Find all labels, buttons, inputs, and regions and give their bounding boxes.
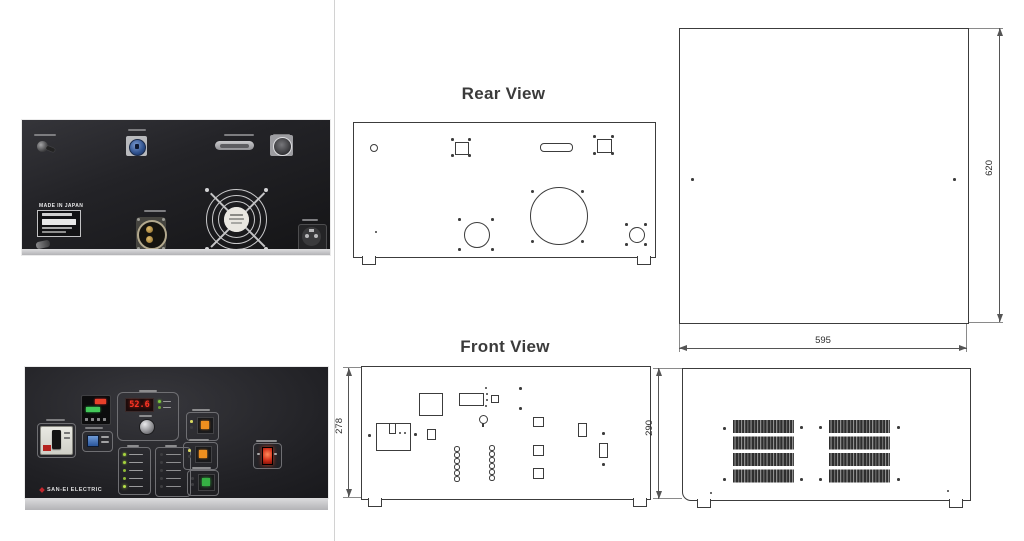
temp-button <box>91 418 94 421</box>
top-view-drawing <box>679 28 969 324</box>
led-hole <box>454 446 460 452</box>
status-led <box>123 477 126 480</box>
brand-logo-icon <box>39 487 45 493</box>
alarm-led <box>160 469 163 472</box>
main-power-switch <box>262 447 273 465</box>
corner-hole <box>593 135 596 138</box>
status-led-label <box>129 454 143 456</box>
laser-power-label <box>139 390 157 392</box>
alarm-led-label <box>166 470 181 472</box>
side-hole <box>691 178 694 181</box>
small-hole <box>486 393 488 395</box>
remote-label <box>101 436 109 438</box>
fan-screw <box>205 188 209 192</box>
small-hole <box>399 432 401 434</box>
panel-label <box>34 134 56 136</box>
fan-mount-hole <box>581 190 584 193</box>
side-height-dim-line <box>658 368 659 499</box>
run-led-label <box>163 401 171 403</box>
keyswitch-slot <box>482 423 484 427</box>
breaker-text <box>64 432 70 434</box>
small-hole <box>404 432 406 434</box>
small-connector <box>35 240 50 250</box>
main-breaker <box>40 426 73 455</box>
flange-screw <box>137 218 140 221</box>
vent-grille <box>829 420 890 486</box>
small-hole <box>947 490 949 492</box>
small-hole <box>519 407 522 410</box>
breaker-rating-label <box>43 445 51 451</box>
chassis-foot <box>949 499 963 508</box>
corner-hole <box>451 154 454 157</box>
small-hole <box>414 433 417 436</box>
divider-line <box>334 0 335 541</box>
small-hole <box>368 434 371 437</box>
status-led <box>123 485 126 488</box>
vent-mount-hole <box>897 426 900 429</box>
temp-button <box>97 418 100 421</box>
spec-label-row <box>42 231 66 233</box>
vent-mount-hole <box>897 478 900 481</box>
small-hole <box>375 231 377 233</box>
top-width-dim-line <box>679 348 967 349</box>
fan-hub-text <box>229 218 244 220</box>
corner-hole <box>468 154 471 157</box>
led-hole <box>454 452 460 458</box>
vent-mount-hole <box>819 478 822 481</box>
hole-small-circle <box>370 144 378 152</box>
corner-hole <box>458 248 461 251</box>
small-square-cutout <box>491 395 499 403</box>
top-depth-dim-line <box>999 28 1000 322</box>
spec-label-row <box>42 227 72 229</box>
local-label <box>101 441 109 443</box>
breaker-text <box>64 437 70 439</box>
vent-mount-hole <box>723 427 726 430</box>
chassis-foot <box>637 256 651 265</box>
led-hole <box>489 463 495 469</box>
led-hole <box>489 457 495 463</box>
top-depth-dim-label: 620 <box>984 160 995 176</box>
corner-hole <box>611 135 614 138</box>
temp-display-green <box>86 407 100 412</box>
guide-button-bezel <box>198 474 215 491</box>
panel-label <box>224 134 254 136</box>
breaker-window-cutout <box>389 423 396 434</box>
front-view-drawing <box>361 366 651 500</box>
extension-line <box>343 497 361 498</box>
spec-label-row <box>42 219 76 225</box>
fan-grille <box>205 188 268 251</box>
corner-hole <box>593 152 596 155</box>
chassis-foot <box>368 498 382 507</box>
ac-inlet-pin <box>305 234 309 238</box>
shutter-button-bezel <box>195 446 212 463</box>
guide-beam-label <box>192 467 211 469</box>
power-input-connector-key <box>135 144 139 149</box>
spec-label-row <box>42 213 72 216</box>
fan-mount-hole <box>531 190 534 193</box>
vent-mount-hole <box>819 426 822 429</box>
small-hole <box>602 463 605 466</box>
fan-cutout-circle <box>530 187 588 245</box>
extension-line <box>969 322 1003 323</box>
round-connector <box>273 137 292 156</box>
button-cutout <box>533 468 544 479</box>
status-led-label <box>129 470 143 472</box>
vent-mount-hole <box>800 426 803 429</box>
dsub-cutout <box>540 143 573 152</box>
spec-label <box>37 210 81 237</box>
panel-label <box>302 219 318 221</box>
corner-hole <box>491 218 494 221</box>
display-cutout <box>459 393 484 406</box>
led-hole <box>489 469 495 475</box>
small-hole <box>485 387 487 389</box>
button-cutout <box>533 417 544 427</box>
status-led <box>123 453 126 456</box>
fan-hub-text <box>230 214 243 216</box>
status-led <box>123 461 126 464</box>
breaker-toggle <box>52 430 61 449</box>
guide-beam-button <box>202 478 210 486</box>
rear-panel-photo: MADE IN JAPAN <box>22 120 330 255</box>
side-view-drawing <box>682 368 971 501</box>
panel-label <box>128 129 146 131</box>
dsub-connector-inner <box>220 144 249 148</box>
chassis-foot <box>697 499 711 508</box>
front-view-title: Front View <box>361 337 649 357</box>
start-button-bezel <box>197 417 214 434</box>
brand-text: SAN-EI ELECTRIC <box>47 487 102 493</box>
chassis-foot <box>362 256 376 265</box>
remote-local-label <box>85 427 103 429</box>
temp-display-red <box>95 399 106 404</box>
table-surface <box>22 249 330 255</box>
rear-view-title: Rear View <box>353 84 654 104</box>
temp-button <box>103 418 106 421</box>
status-group-label <box>127 445 139 447</box>
laser-power-display: 52.6 <box>125 398 154 412</box>
corner-hole <box>468 138 471 141</box>
corner-hole <box>458 218 461 221</box>
shutter-button <box>199 450 207 458</box>
small-hole <box>710 492 712 494</box>
rocker-cutout <box>599 443 608 458</box>
fan-hub-label <box>224 207 249 232</box>
corner-hole <box>451 138 454 141</box>
set-led-label <box>163 407 171 409</box>
connector-cutout-circle <box>464 222 490 248</box>
shutter-led <box>188 455 191 458</box>
flange-screw <box>162 218 165 221</box>
temp-controller-cutout <box>419 393 443 416</box>
switch-cutout <box>578 423 587 437</box>
ac-inlet-cutout <box>629 227 645 243</box>
temp-button <box>85 418 88 421</box>
alarm-led <box>160 453 163 456</box>
output-connector <box>137 220 167 250</box>
panel-label <box>144 210 166 212</box>
start-stop-label <box>192 409 210 411</box>
guide-led <box>191 477 194 480</box>
front-height-dim-label: 278 <box>334 418 345 434</box>
small-hole <box>602 432 605 435</box>
start-led <box>190 420 193 423</box>
alarm-led-label <box>166 454 181 456</box>
stop-led <box>190 426 193 429</box>
origin-label: MADE IN JAPAN <box>39 203 83 209</box>
status-led <box>123 469 126 472</box>
button-cutout <box>533 445 544 456</box>
main-power-label <box>256 440 277 442</box>
alarm-led-label <box>166 486 181 488</box>
alarm-led-label <box>166 462 181 464</box>
corner-hole <box>644 243 647 246</box>
front-panel-photo: 52.6 <box>25 367 328 498</box>
corner-hole <box>625 223 628 226</box>
ac-inlet-pin <box>309 229 314 232</box>
fan-screw <box>264 188 268 192</box>
temp-controller <box>81 395 111 425</box>
set-led <box>158 406 161 409</box>
alarm-led-label <box>166 478 181 480</box>
connector-cutout-square <box>597 139 612 153</box>
toggle-connector-lever <box>46 145 56 152</box>
led-hole <box>454 458 460 464</box>
fan-mount-hole <box>531 240 534 243</box>
corner-hole <box>644 223 647 226</box>
spec-sheet: MADE IN JAPAN <box>0 0 1024 541</box>
fan-hub-text <box>231 222 242 224</box>
table-surface-front <box>25 498 328 510</box>
corner-hole <box>625 243 628 246</box>
status-led-label <box>129 486 143 488</box>
alarm-led <box>160 485 163 488</box>
rear-view-drawing <box>353 122 656 258</box>
shutter-led <box>188 449 191 452</box>
corner-hole <box>491 248 494 251</box>
alarm-led <box>160 461 163 464</box>
led-hole <box>454 464 460 470</box>
small-hole <box>485 405 487 407</box>
switch-cutout <box>427 429 436 440</box>
led-hole <box>489 445 495 451</box>
switch-mark <box>274 453 277 455</box>
front-height-dim-line <box>348 368 349 497</box>
corner-hole <box>611 152 614 155</box>
start-button <box>201 421 209 429</box>
power-adjust-knob <box>139 419 155 435</box>
led-hole <box>489 451 495 457</box>
output-connector-pin <box>146 236 153 243</box>
vent-mount-hole <box>800 478 803 481</box>
ac-inlet-pin <box>314 234 318 238</box>
top-width-dim-label: 595 <box>679 335 967 346</box>
led-hole <box>489 475 495 481</box>
shutter-label <box>189 439 209 441</box>
remote-local-switch <box>87 435 99 447</box>
led-hole <box>454 470 460 476</box>
guide-led <box>191 483 194 486</box>
main-breaker-label <box>46 419 65 421</box>
status-led-label <box>129 478 143 480</box>
side-hole <box>953 178 956 181</box>
small-hole <box>486 399 488 401</box>
connector-cutout-square <box>455 142 469 155</box>
output-connector-pin <box>146 226 153 233</box>
run-led <box>158 400 161 403</box>
alarm-group-label <box>165 445 177 447</box>
status-led-label <box>129 462 143 464</box>
led-hole <box>454 476 460 482</box>
power-adj-label <box>139 415 152 417</box>
alarm-led <box>160 477 163 480</box>
fan-mount-hole <box>581 240 584 243</box>
switch-mark <box>257 453 260 455</box>
chassis-foot <box>633 498 647 507</box>
vent-grille <box>733 420 794 486</box>
vent-mount-hole <box>723 478 726 481</box>
small-hole <box>519 387 522 390</box>
side-height-dim-label: 290 <box>644 420 655 436</box>
